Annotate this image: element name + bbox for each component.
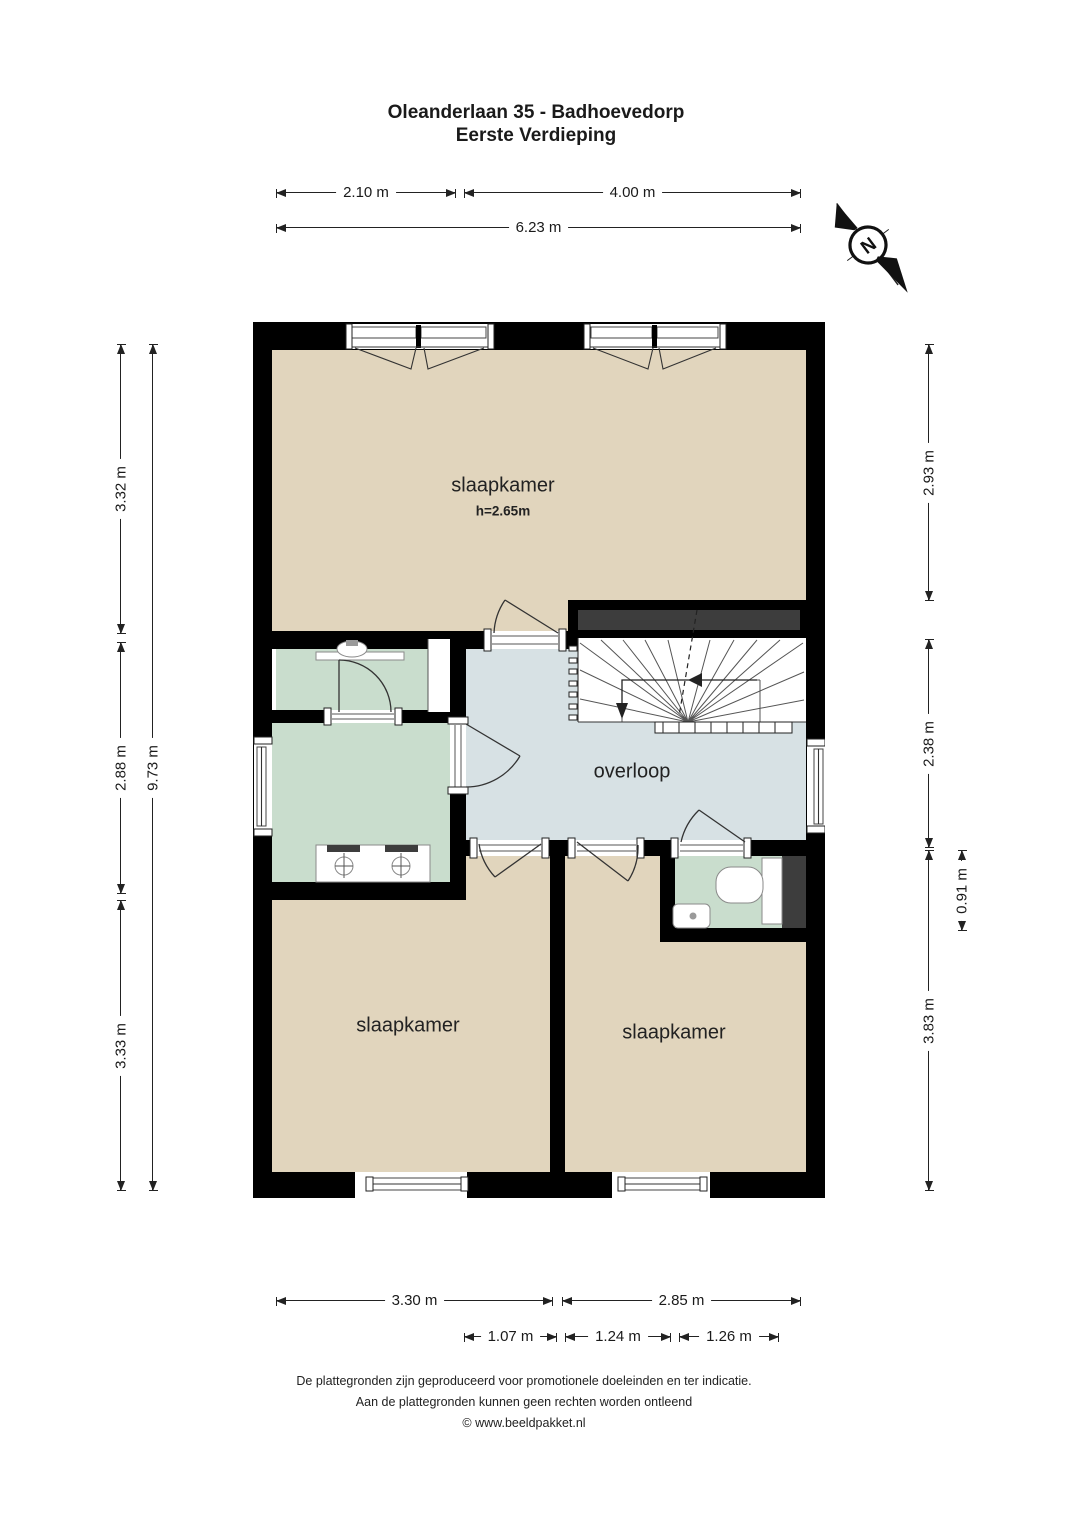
dim-left-mid: 2.88 m	[120, 643, 121, 893]
plan-title-floor: Eerste Verdieping	[0, 124, 1072, 147]
footer-line-2: Aan de plattegronden kunnen geen rechten…	[0, 1392, 1048, 1413]
dim-bottom-s1: 1.07 m	[465, 1336, 556, 1337]
wall-bathroom-bottom	[253, 882, 466, 900]
threshold-bedroom-right	[568, 838, 644, 858]
closet	[428, 639, 450, 712]
label-landing: overloop	[594, 761, 671, 784]
compass-north-icon: N	[812, 190, 927, 305]
footer-line-3: © www.beeldpakket.nl	[0, 1413, 1048, 1434]
wall-bedroom-divider	[550, 840, 565, 1172]
plan-title-address: Oleanderlaan 35 - Badhoevedorp	[0, 101, 1072, 124]
label-bedroom-right: slaapkamer	[622, 1022, 725, 1045]
dim-left-total: 9.73 m	[152, 345, 153, 1190]
floor-plan	[253, 322, 825, 1202]
stair-void-band	[578, 610, 800, 630]
dim-top-right: 4.00 m	[465, 192, 800, 193]
room-fills	[272, 350, 806, 1172]
footer-line-1: De plattegronden zijn geproduceerd voor …	[0, 1371, 1048, 1392]
window-bathroom-left	[254, 737, 272, 836]
dim-top-total: 6.23 m	[277, 227, 800, 228]
label-bedroom-left: slaapkamer	[356, 1015, 459, 1038]
threshold-toilet	[671, 838, 751, 858]
dim-bottom-left: 3.30 m	[277, 1300, 552, 1301]
bedroom-right-floor	[565, 942, 806, 1172]
shaft	[782, 856, 806, 928]
stair-balustrade-bottom	[655, 722, 792, 733]
toilet-bowl	[716, 867, 763, 903]
floorplan-page: { "title": { "line1": "Oleanderlaan 35 -…	[0, 0, 1080, 1527]
threshold-bedroom-top	[484, 629, 566, 651]
plan-title: Oleanderlaan 35 - Badhoevedorp Eerste Ve…	[0, 101, 1072, 147]
dim-right-mid: 2.38 m	[928, 640, 929, 847]
dim-right-toilet: 0.91 m	[961, 851, 962, 930]
wall-bathroom-right-upper	[450, 631, 466, 723]
washroom-tap	[346, 640, 358, 646]
dim-right-top: 2.93 m	[928, 345, 929, 600]
wall-toilet-bottom	[660, 928, 806, 942]
threshold-bathroom	[448, 717, 468, 794]
bathroom-fixtures	[316, 845, 430, 882]
dim-left-top: 3.32 m	[120, 345, 121, 633]
toilet-cistern	[762, 858, 782, 924]
dim-right-bottom: 3.83 m	[928, 851, 929, 1190]
threshold-washroom	[324, 708, 402, 725]
window-bedroom-left	[355, 1172, 468, 1198]
label-bedroom-top: slaapkamer	[451, 475, 554, 498]
dim-left-bottom: 3.33 m	[120, 901, 121, 1190]
dim-bottom-s2: 1.24 m	[566, 1336, 670, 1337]
dim-bottom-right: 2.85 m	[563, 1300, 800, 1301]
window-bedroom-right	[612, 1172, 710, 1198]
label-bedroom-top-height: h=2.65m	[476, 504, 530, 519]
dim-top-left: 2.10 m	[277, 192, 455, 193]
window-landing-right	[807, 739, 825, 833]
footer-disclaimer: De plattegronden zijn geproduceerd voor …	[0, 1371, 1048, 1434]
dim-bottom-s3: 1.26 m	[680, 1336, 778, 1337]
